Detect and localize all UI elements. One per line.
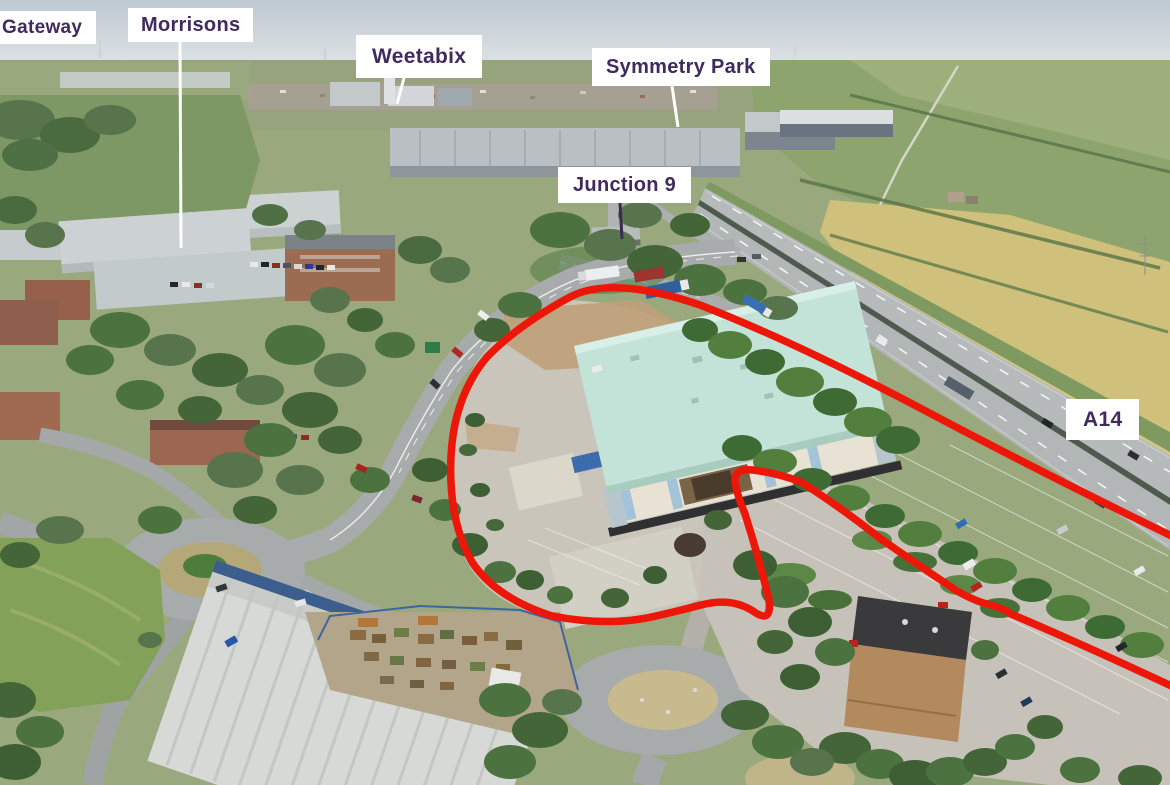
label-weetabix: Weetabix (356, 35, 482, 78)
label-gateway: Gateway (0, 11, 96, 44)
label-a14: A14 (1066, 399, 1139, 440)
road-sign-green (425, 342, 440, 353)
restaurant-building (844, 596, 972, 742)
label-junction-9: Junction 9 (558, 167, 691, 203)
industrial-estate-west (0, 95, 395, 545)
aerial-site-photo: Gateway Morrisons Weetabix Symmetry Park… (0, 0, 1170, 785)
aerial-scene (0, 0, 1170, 785)
junction9-leader-line (620, 203, 622, 239)
label-morrisons: Morrisons (128, 8, 253, 42)
morrisons-leader-line (180, 42, 181, 248)
label-symmetry-park: Symmetry Park (592, 48, 770, 86)
